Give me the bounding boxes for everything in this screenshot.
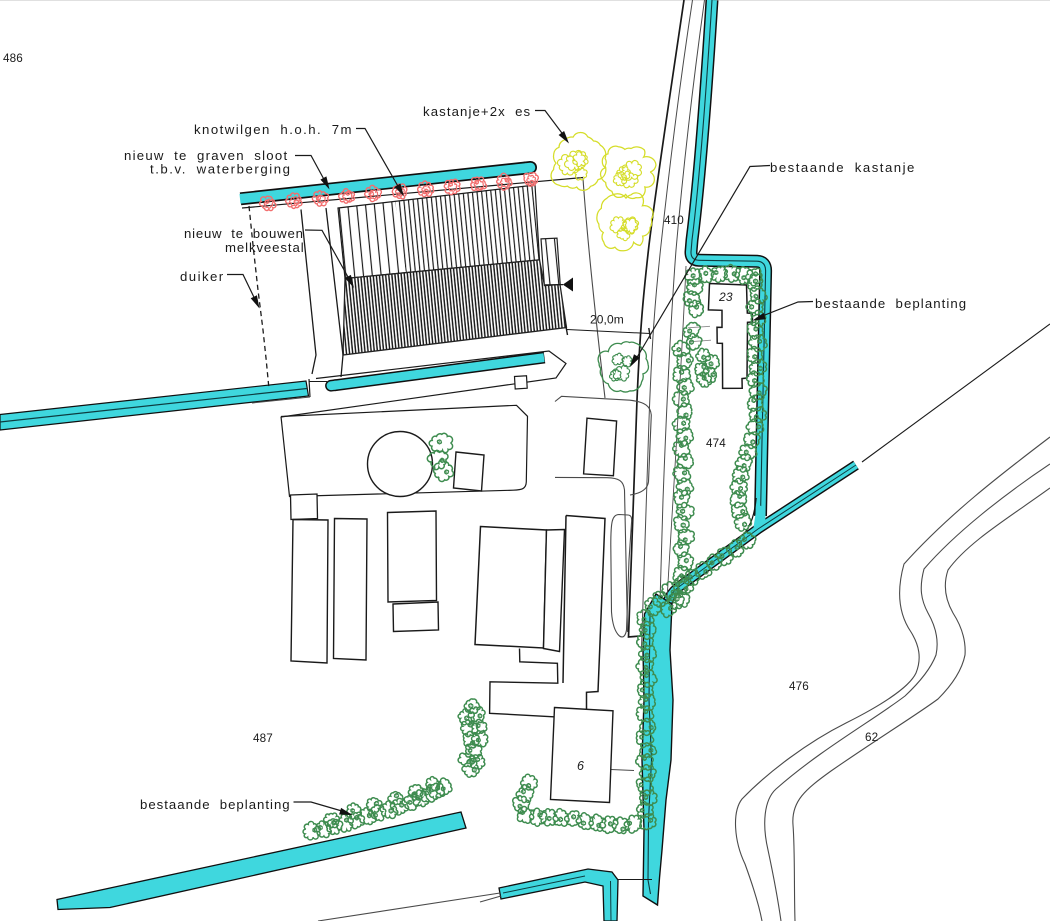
svg-text:20,0m: 20,0m: [590, 313, 624, 327]
svg-text:476: 476: [789, 680, 809, 693]
svg-text:486: 486: [3, 52, 23, 65]
svg-text:474: 474: [706, 437, 726, 450]
svg-text:6: 6: [577, 759, 584, 773]
svg-text:bestaande beplanting: bestaande beplanting: [140, 797, 291, 812]
svg-text:t.b.v. waterberging: t.b.v. waterberging: [150, 162, 291, 177]
svg-text:410: 410: [664, 214, 684, 227]
svg-text:62: 62: [865, 731, 878, 744]
svg-text:487: 487: [253, 732, 273, 745]
svg-text:nieuw te bouwen: nieuw te bouwen: [184, 226, 304, 241]
svg-text:knotwilgen h.o.h. 7m: knotwilgen h.o.h. 7m: [194, 122, 353, 137]
svg-text:kastanje+2x es: kastanje+2x es: [423, 104, 531, 119]
svg-text:duiker: duiker: [180, 269, 225, 284]
svg-text:bestaande beplanting: bestaande beplanting: [815, 296, 967, 311]
svg-text:23: 23: [718, 290, 733, 304]
svg-text:bestaande kastanje: bestaande kastanje: [770, 160, 916, 175]
svg-text:melkveestal: melkveestal: [225, 240, 305, 255]
